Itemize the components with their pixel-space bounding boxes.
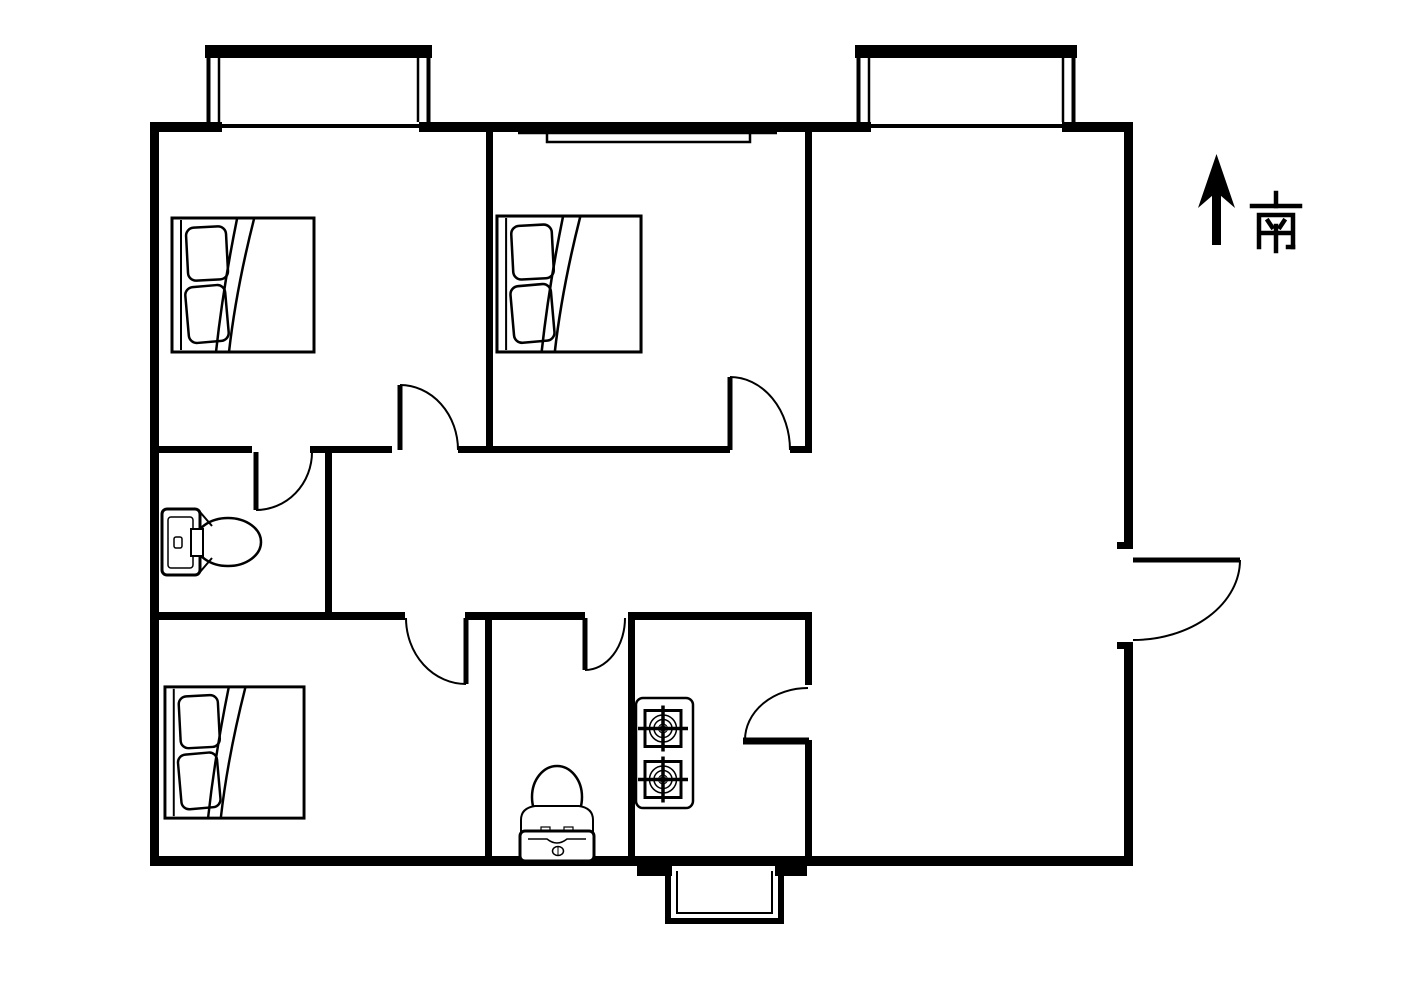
wall-mid-a — [159, 446, 252, 453]
entrance-jamb-bottom — [1117, 642, 1133, 649]
wall-kitchen-east-lower — [805, 740, 812, 856]
wall-bath2-kitchen — [628, 620, 635, 856]
door-bedroom-3 — [406, 618, 466, 684]
wall-east-lower — [1124, 649, 1133, 866]
door-swing-arc — [745, 688, 808, 740]
bay-outer-wall — [205, 45, 432, 58]
door-entrance — [1133, 560, 1240, 640]
toilet-seat-plate — [191, 529, 203, 556]
floor-plan-page: 南 — [0, 0, 1424, 1000]
entrance-jamb-top — [1117, 542, 1133, 549]
floor-plan-drawing: 南 — [0, 0, 1424, 1000]
door-swing-arc — [256, 452, 312, 510]
toilet-bowl — [195, 518, 261, 566]
stove-icon-kitchen — [636, 698, 693, 808]
door-swing-arc — [400, 385, 458, 450]
compass: 南 — [1198, 154, 1302, 255]
toilet-icon-bathroom-1 — [162, 509, 261, 575]
toilet-seat-plate — [521, 806, 593, 833]
bay-outer-wall — [855, 45, 1077, 58]
wall-mid-c — [458, 446, 730, 453]
door-bathroom-2 — [585, 618, 625, 670]
wall-mid-b — [310, 446, 392, 453]
toilet-icon-bathroom-2 — [520, 766, 594, 861]
door-bedroom-2 — [730, 377, 790, 450]
wall-bed1-bed2 — [486, 132, 493, 450]
door-swing-arc — [1133, 560, 1240, 640]
bed-icon-bedroom-1 — [172, 218, 314, 352]
wall-lower-a — [159, 612, 405, 620]
wall-east-upper — [1124, 122, 1133, 542]
window-sill-line — [871, 124, 1062, 128]
wall-bed2-living — [805, 132, 812, 453]
door-swing-arc — [585, 618, 625, 670]
stove-burner-2 — [638, 757, 688, 803]
wall-bed3-bath2 — [485, 620, 492, 856]
wall-bath1-east — [325, 446, 332, 620]
wall-west — [150, 122, 159, 866]
door-kitchen — [743, 688, 809, 741]
bay-window-top-right — [855, 45, 1077, 128]
compass-arrow-icon — [1198, 154, 1235, 245]
wall-south — [150, 856, 1133, 866]
bed-icon-bedroom-2 — [497, 216, 641, 352]
window-sill-line — [222, 124, 419, 128]
balcony-flue-bottom — [637, 866, 807, 921]
wall-lower-c — [628, 612, 812, 620]
flue-inner-line — [677, 871, 772, 913]
bed-icon-bedroom-3 — [165, 687, 304, 818]
bay-window-top-left — [205, 45, 432, 128]
wall-kitchen-east-upper — [805, 620, 812, 685]
door-swing-arc — [730, 377, 790, 450]
door-bathroom-1 — [256, 452, 312, 510]
stove-burner-1 — [638, 706, 688, 752]
wall-lower-b — [465, 612, 585, 620]
door-bedroom-1 — [400, 385, 458, 450]
door-swing-arc — [406, 618, 466, 684]
wall-north-a — [150, 122, 222, 132]
toilet-flush-button — [174, 537, 182, 548]
wall-mid-d — [790, 446, 812, 453]
